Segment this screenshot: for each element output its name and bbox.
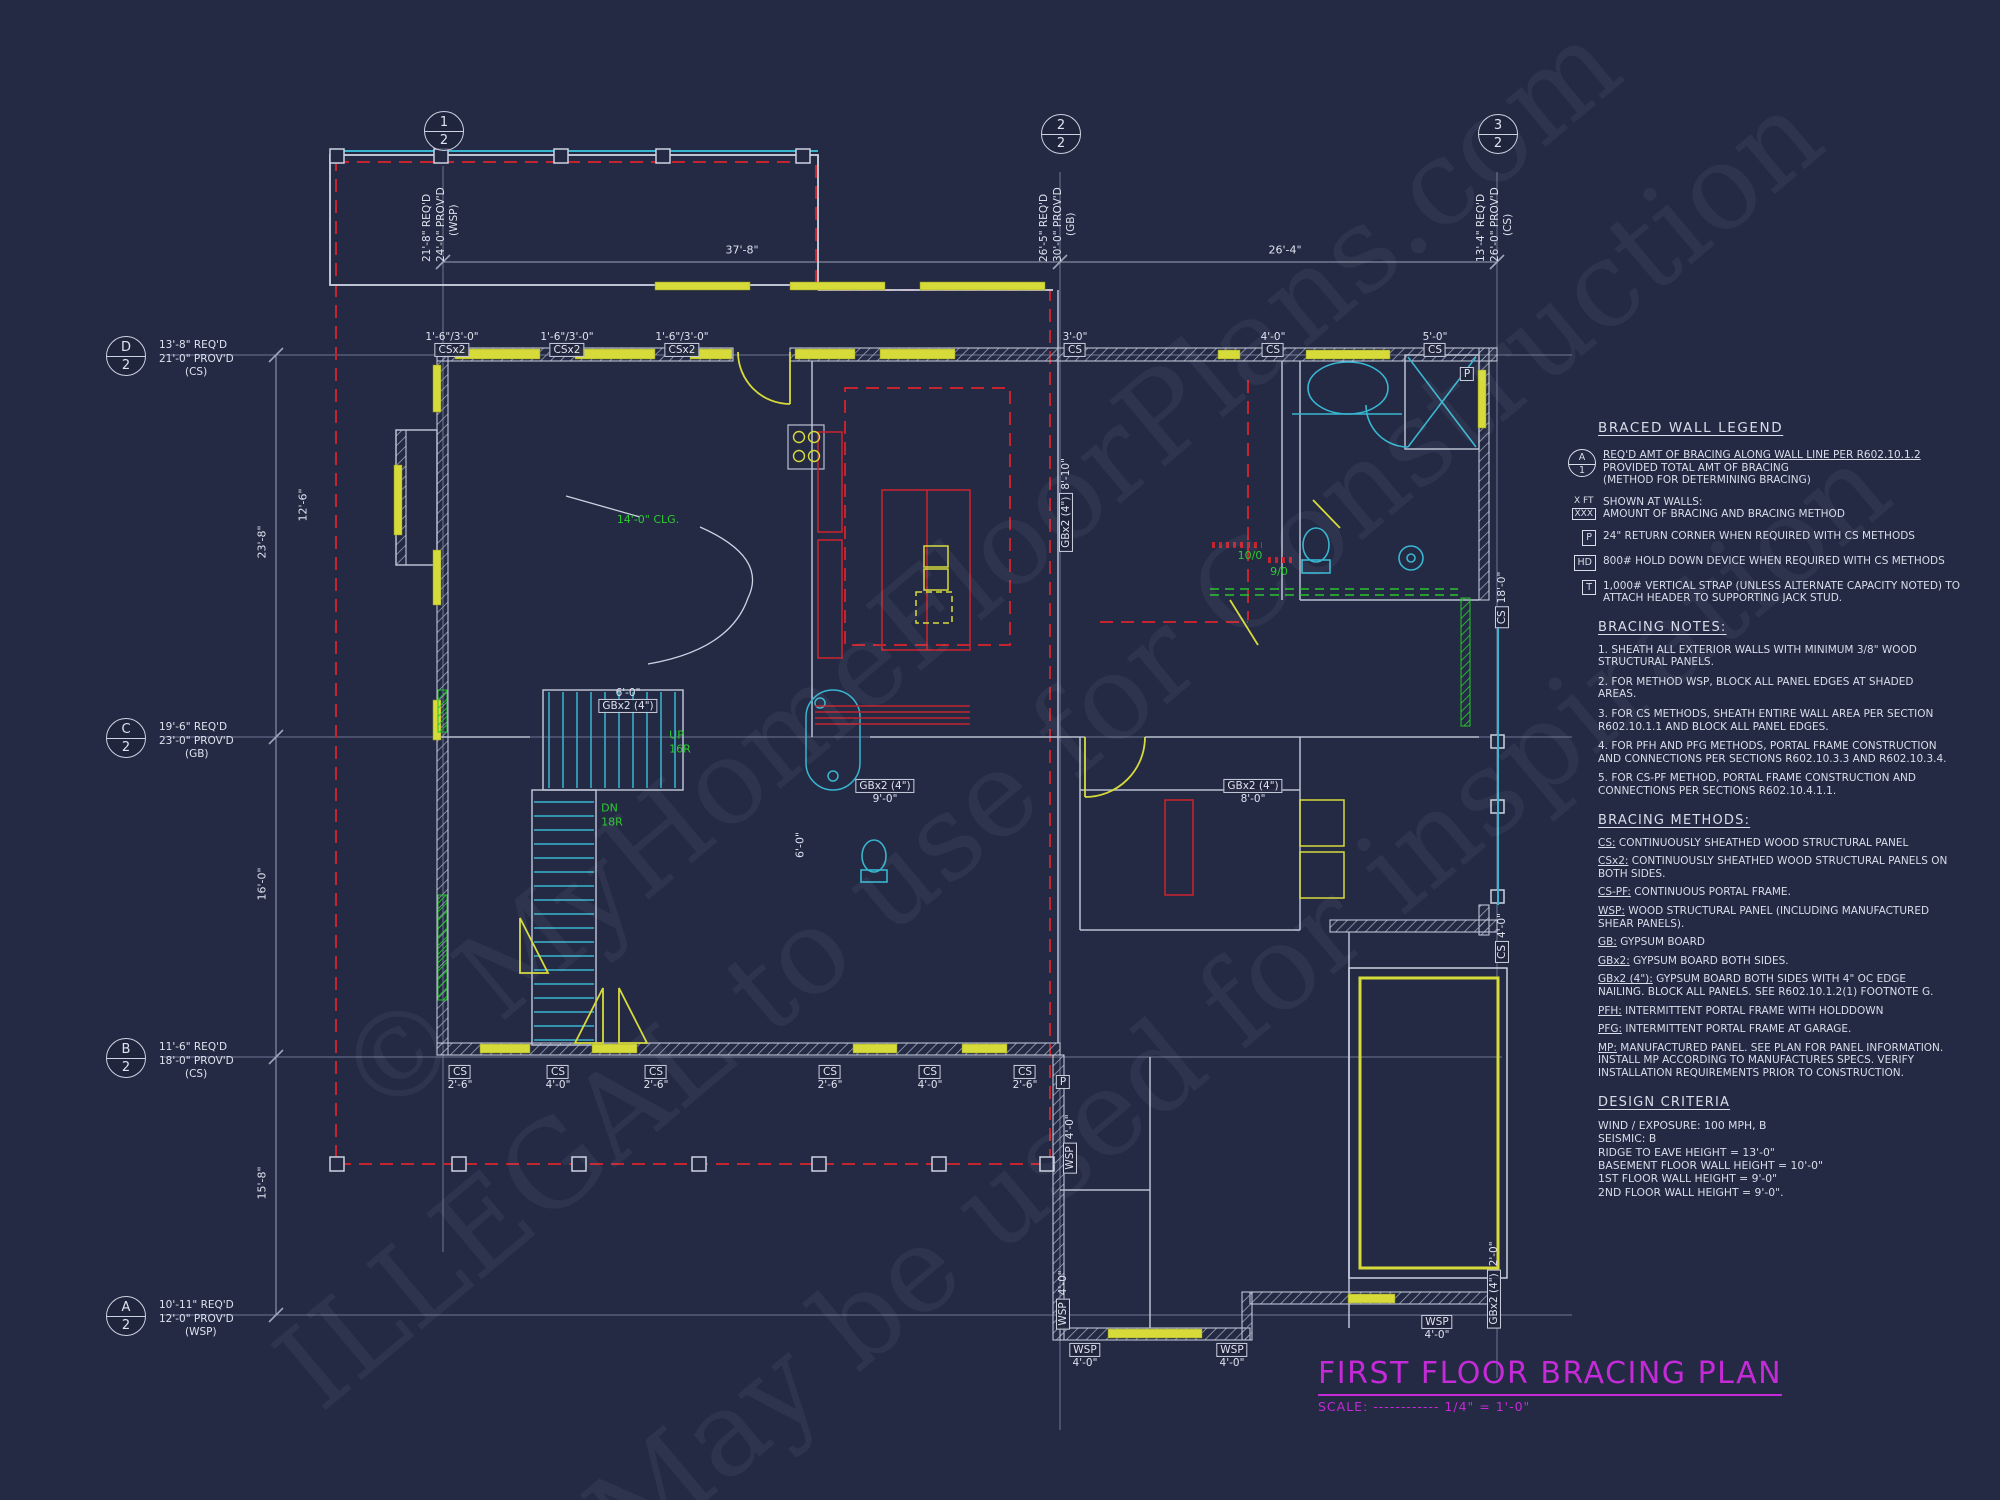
bracing-method-box: CS bbox=[1014, 1065, 1036, 1079]
range-burners-icon bbox=[794, 432, 820, 462]
bracing-method-box: CSx2 bbox=[665, 343, 700, 357]
bracing-callout: CS4'-0" bbox=[1495, 913, 1509, 963]
grid-dim-provided: 24'-0" PROV'D bbox=[435, 187, 449, 262]
t-symbol-icon: T bbox=[1582, 580, 1596, 596]
legend-line: PROVIDED TOTAL AMT OF BRACING bbox=[1603, 462, 1965, 475]
dimension-text: 12'-6" bbox=[297, 488, 310, 521]
grid-dim-method: (WSP) bbox=[159, 1326, 234, 1340]
bubble-top: A bbox=[1569, 450, 1595, 465]
plan-annotation: 10/0 bbox=[1238, 549, 1263, 563]
grid-bubble: A2 bbox=[106, 1296, 146, 1336]
legend-boxed-item: P24" RETURN CORNER WHEN REQUIRED WITH CS… bbox=[1556, 530, 2000, 546]
grid-bubble-label: 1 bbox=[425, 116, 463, 132]
bracing-length-label: 2'-6" bbox=[1013, 1079, 1038, 1091]
bracing-callout: CS18'-0" bbox=[1495, 572, 1509, 629]
bracing-callout: WSP4'-0" bbox=[1056, 1270, 1070, 1329]
legend-symbol: T bbox=[1556, 580, 1603, 605]
bracing-callout: CS2'-6" bbox=[818, 1065, 843, 1091]
plan-annotation: DN18R bbox=[601, 801, 623, 829]
grid-dim-required: 26'-5" REQ'D bbox=[1038, 187, 1052, 262]
method-abbr: PFG: bbox=[1598, 1023, 1622, 1035]
bracing-callout: P bbox=[1460, 367, 1474, 381]
bracing-callout: P bbox=[1056, 1075, 1070, 1089]
bracing-callout: WSP4'-0" bbox=[1421, 1315, 1452, 1341]
bracing-length-label: 4'-0" bbox=[1261, 331, 1286, 343]
legend-symbol: A1 bbox=[1556, 449, 1603, 487]
design-criteria-line: 2ND FLOOR WALL HEIGHT = 9'-0". bbox=[1598, 1186, 2000, 1199]
method-abbr: CS: bbox=[1598, 837, 1616, 849]
grid-bubble-number: 2 bbox=[122, 357, 130, 372]
grid-dim-method: (GB) bbox=[159, 748, 234, 762]
wall-tag-icon: X FTXXX bbox=[1572, 496, 1597, 521]
grid-dim-method: (WSP) bbox=[448, 187, 462, 262]
bracing-method: MP: MANUFACTURED PANEL. SEE PLAN FOR PAN… bbox=[1598, 1042, 1952, 1080]
plan-annotation-line: 10/0 bbox=[1238, 549, 1263, 563]
grid-dimension-text: 11'-6" REQ'D18'-0" PROV'D(CS) bbox=[159, 1041, 234, 1082]
bracing-method: GB: GYPSUM BOARD bbox=[1598, 936, 1952, 949]
bracing-method: GBx2 (4"): GYPSUM BOARD BOTH SIDES WITH … bbox=[1598, 973, 1952, 998]
bracing-method: WSP: WOOD STRUCTURAL PANEL (INCLUDING MA… bbox=[1598, 905, 1952, 930]
grid-bubble-number: 2 bbox=[122, 1059, 130, 1074]
dimension-text: 6'-0" bbox=[794, 832, 807, 858]
grid-dim-required: 10'-11" REQ'D bbox=[159, 1299, 234, 1313]
grid-dim-required: 13'-8" REQ'D bbox=[159, 339, 234, 353]
bracing-method-box: CS bbox=[1495, 606, 1509, 628]
bracing-callout: 1'-6"/3'-0"CSx2 bbox=[655, 331, 708, 357]
plan-annotation-line: 18R bbox=[601, 815, 623, 829]
grid-dim-provided: 18'-0" PROV'D bbox=[159, 1055, 234, 1069]
bracing-method: GBx2: GYPSUM BOARD BOTH SIDES. bbox=[1598, 955, 1952, 968]
bracing-length-label: 2'-0" bbox=[1488, 1241, 1500, 1266]
bracing-length-label: 4'-0" bbox=[1496, 913, 1508, 938]
bracing-method-box: CS bbox=[919, 1065, 941, 1079]
grid-bubble-number: 2 bbox=[1494, 135, 1502, 150]
legend-wall-line-item: A1REQ'D AMT OF BRACING ALONG WALL LINE P… bbox=[1556, 449, 2000, 487]
bracing-callout: 5'-0"CS bbox=[1423, 331, 1448, 357]
bracing-length-label: 1'-6"/3'-0" bbox=[425, 331, 478, 343]
bracing-note: 2. FOR METHOD WSP, BLOCK ALL PANEL EDGES… bbox=[1598, 676, 1952, 701]
hd-symbol-icon: HD bbox=[1574, 555, 1596, 571]
bracing-method-box: CS bbox=[819, 1065, 841, 1079]
bracing-method-box: CS bbox=[645, 1065, 667, 1079]
bracing-length-label: 18'-0" bbox=[1496, 572, 1508, 604]
method-abbr: GBx2: bbox=[1598, 955, 1630, 967]
legend-text: 800# HOLD DOWN DEVICE WHEN REQUIRED WITH… bbox=[1603, 555, 1965, 571]
grid-bubble: C2 bbox=[106, 718, 146, 758]
bracing-method-box: CS bbox=[1064, 343, 1086, 357]
grid-dim-provided: 30'-0" PROV'D bbox=[1052, 187, 1066, 262]
bracing-callout: 1'-6"/3'-0"CSx2 bbox=[540, 331, 593, 357]
bracing-method-box: GBx2 (4") bbox=[855, 779, 914, 793]
grid-dim-method: (CS) bbox=[159, 1068, 234, 1082]
scale-value: 1/4" = 1'-0" bbox=[1444, 1399, 1530, 1414]
design-criteria-line: 1ST FLOOR WALL HEIGHT = 9'-0" bbox=[1598, 1172, 2000, 1185]
method-abbr: CSx2: bbox=[1598, 855, 1628, 867]
bracing-method-box: WSP bbox=[1216, 1343, 1247, 1357]
bracing-method-box: CS bbox=[547, 1065, 569, 1079]
grid-bubble: 22 bbox=[1041, 114, 1081, 154]
grid-bubble: 32 bbox=[1478, 114, 1518, 154]
method-abbr: MP: bbox=[1598, 1042, 1617, 1054]
dimension-text: 23'-8" bbox=[256, 525, 269, 558]
grid-dim-method: (GB) bbox=[1065, 187, 1079, 262]
plan-annotation-line: UP bbox=[669, 728, 691, 742]
bracing-length-label: 4'-0" bbox=[1425, 1329, 1450, 1341]
grid-bubble-label: C bbox=[107, 723, 145, 739]
legend-boxed-item: HD800# HOLD DOWN DEVICE WHEN REQUIRED WI… bbox=[1556, 555, 2000, 571]
plan-annotation: 9/0 bbox=[1270, 565, 1288, 579]
plan-annotation-line: 14'-0" CLG. bbox=[617, 513, 679, 527]
bracing-note: 3. FOR CS METHODS, SHEATH ENTIRE WALL AR… bbox=[1598, 708, 1952, 733]
grid-dim-provided: 23'-0" PROV'D bbox=[159, 735, 234, 749]
grid-bubble: D2 bbox=[106, 336, 146, 376]
bracing-callout: CS2'-6" bbox=[1013, 1065, 1038, 1091]
legend-text: 24" RETURN CORNER WHEN REQUIRED WITH CS … bbox=[1603, 530, 1965, 546]
legend-text: REQ'D AMT OF BRACING ALONG WALL LINE PER… bbox=[1603, 449, 1965, 487]
bracing-length-label: 2'-6" bbox=[644, 1079, 669, 1091]
grid-dimension-text: 10'-11" REQ'D12'-0" PROV'D(WSP) bbox=[159, 1299, 234, 1340]
design-criteria-line: RIDGE TO EAVE HEIGHT = 13'-0" bbox=[1598, 1146, 2000, 1159]
grid-dim-method: (CS) bbox=[1502, 187, 1516, 262]
bracing-method: PFG: INTERMITTENT PORTAL FRAME AT GARAGE… bbox=[1598, 1023, 1952, 1036]
bracing-note: 4. FOR PFH AND PFG METHODS, PORTAL FRAME… bbox=[1598, 740, 1952, 765]
bracing-method: PFH: INTERMITTENT PORTAL FRAME WITH HOLD… bbox=[1598, 1005, 1952, 1018]
bracing-method-box: WSP bbox=[1056, 1298, 1070, 1329]
method-abbr: CS-PF: bbox=[1598, 886, 1631, 898]
bracing-callout: GBx2 (4")2'-0" bbox=[1487, 1241, 1501, 1328]
bracing-callout: WSP4'-0" bbox=[1216, 1343, 1247, 1369]
plan-annotation-line: 9/0 bbox=[1270, 565, 1288, 579]
grid-bubble-number: 2 bbox=[122, 739, 130, 754]
legend-text: 1,000# VERTICAL STRAP (UNLESS ALTERNATE … bbox=[1603, 580, 1965, 605]
grid-bubble-label: 3 bbox=[1479, 119, 1517, 135]
method-abbr: GB: bbox=[1598, 936, 1617, 948]
bracing-method: CSx2: CONTINUOUSLY SHEATHED WOOD STRUCTU… bbox=[1598, 855, 1952, 880]
grid-bubble-number: 2 bbox=[440, 132, 448, 147]
bracing-callout: GBx2 (4")8'-10" bbox=[1059, 458, 1073, 552]
title-block: FIRST FLOOR BRACING PLAN SCALE: --------… bbox=[1318, 1356, 1782, 1414]
grid-bubble-label: A bbox=[107, 1301, 145, 1317]
bracing-note: 1. SHEATH ALL EXTERIOR WALLS WITH MINIMU… bbox=[1598, 644, 1952, 669]
bracing-method-box: WSP bbox=[1063, 1142, 1077, 1173]
bracing-method-box: GBx2 (4") bbox=[1059, 493, 1073, 552]
grid-dim-provided: 26'-0" PROV'D bbox=[1489, 187, 1503, 262]
grid-dim-provided: 21'-0" PROV'D bbox=[159, 353, 234, 367]
sheet-scale: SCALE: ------------ 1/4" = 1'-0" bbox=[1318, 1399, 1782, 1414]
grid-dim-provided: 12'-0" PROV'D bbox=[159, 1313, 234, 1327]
bracing-callout: 4'-0"CS bbox=[1261, 331, 1286, 357]
bracing-callout: GBx2 (4")8'-0" bbox=[1223, 779, 1282, 805]
garage bbox=[1349, 968, 1507, 1278]
plan-annotation-line: DN bbox=[601, 801, 623, 815]
sheet-title: FIRST FLOOR BRACING PLAN bbox=[1318, 1356, 1782, 1396]
scale-label: SCALE: bbox=[1318, 1399, 1368, 1414]
bracing-callout: CS4'-0" bbox=[546, 1065, 571, 1091]
legend-boxed-item: T1,000# VERTICAL STRAP (UNLESS ALTERNATE… bbox=[1556, 580, 2000, 605]
grid-dim-required: 11'-6" REQ'D bbox=[159, 1041, 234, 1055]
bracing-note: 5. FOR CS-PF METHOD, PORTAL FRAME CONSTR… bbox=[1598, 772, 1952, 797]
bracing-method-box: GBx2 (4") bbox=[598, 699, 657, 713]
bracing-method: CS: CONTINUOUSLY SHEATHED WOOD STRUCTURA… bbox=[1598, 837, 1952, 850]
bracing-length-label: 4'-0" bbox=[1064, 1114, 1076, 1139]
bracing-method-box: GBx2 (4") bbox=[1487, 1269, 1501, 1328]
grid-dimension-text: 13'-4" REQ'D26'-0" PROV'D(CS) bbox=[1475, 187, 1516, 262]
grid-bubble-number: 2 bbox=[1057, 135, 1065, 150]
grid-dimension-text: 26'-5" REQ'D30'-0" PROV'D(GB) bbox=[1038, 187, 1079, 262]
bracing-method-box: CS bbox=[1262, 343, 1284, 357]
bracing-length-label: 4'-0" bbox=[1220, 1357, 1245, 1369]
method-abbr: PFH: bbox=[1598, 1005, 1622, 1017]
bracing-callout: WSP4'-0" bbox=[1063, 1114, 1077, 1173]
legend-at-walls-item: X FTXXXSHOWN AT WALLS:AMOUNT OF BRACING … bbox=[1556, 496, 2000, 521]
bracing-callout: GBx2 (4")9'-0" bbox=[855, 779, 914, 805]
plan-annotation-line: 16R bbox=[669, 742, 691, 756]
grid-dim-required: 19'-6" REQ'D bbox=[159, 721, 234, 735]
p-symbol-icon: P bbox=[1582, 530, 1596, 546]
legend-panel: BRACED WALL LEGENDA1REQ'D AMT OF BRACING… bbox=[1556, 420, 2000, 1199]
grid-bubble: B2 bbox=[106, 1038, 146, 1078]
bracing-length-label: 2'-6" bbox=[448, 1079, 473, 1091]
bracing-length-label: 8'-0" bbox=[1241, 793, 1266, 805]
grid-bubble: 12 bbox=[424, 111, 464, 151]
bracing-length-label: 9'-0" bbox=[873, 793, 898, 805]
bracing-length-label: 4'-0" bbox=[918, 1079, 943, 1091]
grid-bubble-label: 2 bbox=[1042, 119, 1080, 135]
bracing-method: CS-PF: CONTINUOUS PORTAL FRAME. bbox=[1598, 886, 1952, 899]
bracing-length-label: 1'-6"/3'-0" bbox=[655, 331, 708, 343]
design-criteria-line: BASEMENT FLOOR WALL HEIGHT = 10'-0" bbox=[1598, 1159, 2000, 1172]
bracing-method-box: CSx2 bbox=[550, 343, 585, 357]
bracing-method-box: WSP bbox=[1069, 1343, 1100, 1357]
bracing-method-box: WSP bbox=[1421, 1315, 1452, 1329]
grid-bubble-number: 2 bbox=[122, 1317, 130, 1332]
legend-line: REQ'D AMT OF BRACING ALONG WALL LINE PER… bbox=[1603, 449, 1965, 462]
grid-dim-required: 13'-4" REQ'D bbox=[1475, 187, 1489, 262]
grid-dimension-text: 21'-8" REQ'D24'-0" PROV'D(WSP) bbox=[421, 187, 462, 262]
bracing-length-label: 2'-6" bbox=[818, 1079, 843, 1091]
bracing-length-label: 6'-0" bbox=[616, 687, 641, 699]
bracing-length-label: 4'-0" bbox=[546, 1079, 571, 1091]
dimension-text: 15'-8" bbox=[256, 1166, 269, 1199]
drawing-sheet: © MyHomeFloorPlans.comILLEGAL to use for… bbox=[0, 0, 2000, 1500]
grid-dim-method: (CS) bbox=[159, 366, 234, 380]
legend-symbol: X FTXXX bbox=[1556, 496, 1603, 521]
bracing-notes-title: BRACING NOTES: bbox=[1598, 620, 2000, 635]
plan-annotation: 14'-0" CLG. bbox=[617, 513, 679, 527]
bracing-method-box: P bbox=[1056, 1075, 1070, 1089]
bracing-method-box: CS bbox=[1495, 941, 1509, 963]
bracing-method-box: CSx2 bbox=[435, 343, 470, 357]
braced-wall-bubble-icon: A1 bbox=[1568, 449, 1596, 477]
legend-symbol: P bbox=[1556, 530, 1603, 546]
design-criteria-title: DESIGN CRITERIA bbox=[1598, 1095, 2000, 1110]
plan-annotation: UP16R bbox=[669, 728, 691, 756]
design-criteria-line: WIND / EXPOSURE: 100 MPH, B bbox=[1598, 1119, 2000, 1132]
bracing-method-box: CS bbox=[1424, 343, 1446, 357]
wall-tag-top: X FT bbox=[1572, 496, 1597, 507]
design-criteria-line: SEISMIC: B bbox=[1598, 1132, 2000, 1145]
grid-dimension-text: 19'-6" REQ'D23'-0" PROV'D(GB) bbox=[159, 721, 234, 762]
bracing-length-label: 5'-0" bbox=[1423, 331, 1448, 343]
wall-tag-box: XXX bbox=[1572, 508, 1597, 521]
bracing-length-label: 4'-0" bbox=[1073, 1357, 1098, 1369]
bracing-methods-title: BRACING METHODS: bbox=[1598, 813, 2000, 828]
bracing-length-label: 3'-0" bbox=[1063, 331, 1088, 343]
scale-dots: ------------ bbox=[1373, 1399, 1439, 1414]
legend-title: BRACED WALL LEGEND bbox=[1598, 420, 2000, 436]
bracing-callout: WSP4'-0" bbox=[1069, 1343, 1100, 1369]
bracing-length-label: 4'-0" bbox=[1057, 1270, 1069, 1295]
method-abbr: GBx2 (4"): bbox=[1598, 973, 1653, 985]
method-abbr: WSP: bbox=[1598, 905, 1625, 917]
grid-bubble-label: B bbox=[107, 1043, 145, 1059]
bracing-callout: CS2'-6" bbox=[448, 1065, 473, 1091]
legend-text: SHOWN AT WALLS:AMOUNT OF BRACING AND BRA… bbox=[1603, 496, 1965, 521]
bracing-callout: CS4'-0" bbox=[918, 1065, 943, 1091]
dimension-text: 26'-4" bbox=[1268, 244, 1301, 257]
dimension-text: 37'-8" bbox=[725, 244, 758, 257]
bracing-method-box: GBx2 (4") bbox=[1223, 779, 1282, 793]
bracing-callout: 3'-0"CS bbox=[1063, 331, 1088, 357]
bubble-bottom: 1 bbox=[1579, 465, 1585, 476]
bracing-method-box: P bbox=[1460, 367, 1474, 381]
grid-dimension-text: 13'-8" REQ'D21'-0" PROV'D(CS) bbox=[159, 339, 234, 380]
grid-bubble-label: D bbox=[107, 341, 145, 357]
bracing-length-label: 8'-10" bbox=[1060, 458, 1072, 490]
legend-line: (METHOD FOR DETERMINING BRACING) bbox=[1603, 474, 1965, 487]
legend-symbol: HD bbox=[1556, 555, 1603, 571]
grid-dim-required: 21'-8" REQ'D bbox=[421, 187, 435, 262]
dimension-text: 16'-0" bbox=[256, 867, 269, 900]
bracing-callout: 6'-0"GBx2 (4") bbox=[598, 687, 657, 713]
legend-line: SHOWN AT WALLS: bbox=[1603, 496, 1965, 509]
legend-line: AMOUNT OF BRACING AND BRACING METHOD bbox=[1603, 508, 1965, 521]
bracing-length-label: 1'-6"/3'-0" bbox=[540, 331, 593, 343]
bracing-callout: CS2'-6" bbox=[644, 1065, 669, 1091]
bracing-callout: 1'-6"/3'-0"CSx2 bbox=[425, 331, 478, 357]
bracing-method-box: CS bbox=[449, 1065, 471, 1079]
